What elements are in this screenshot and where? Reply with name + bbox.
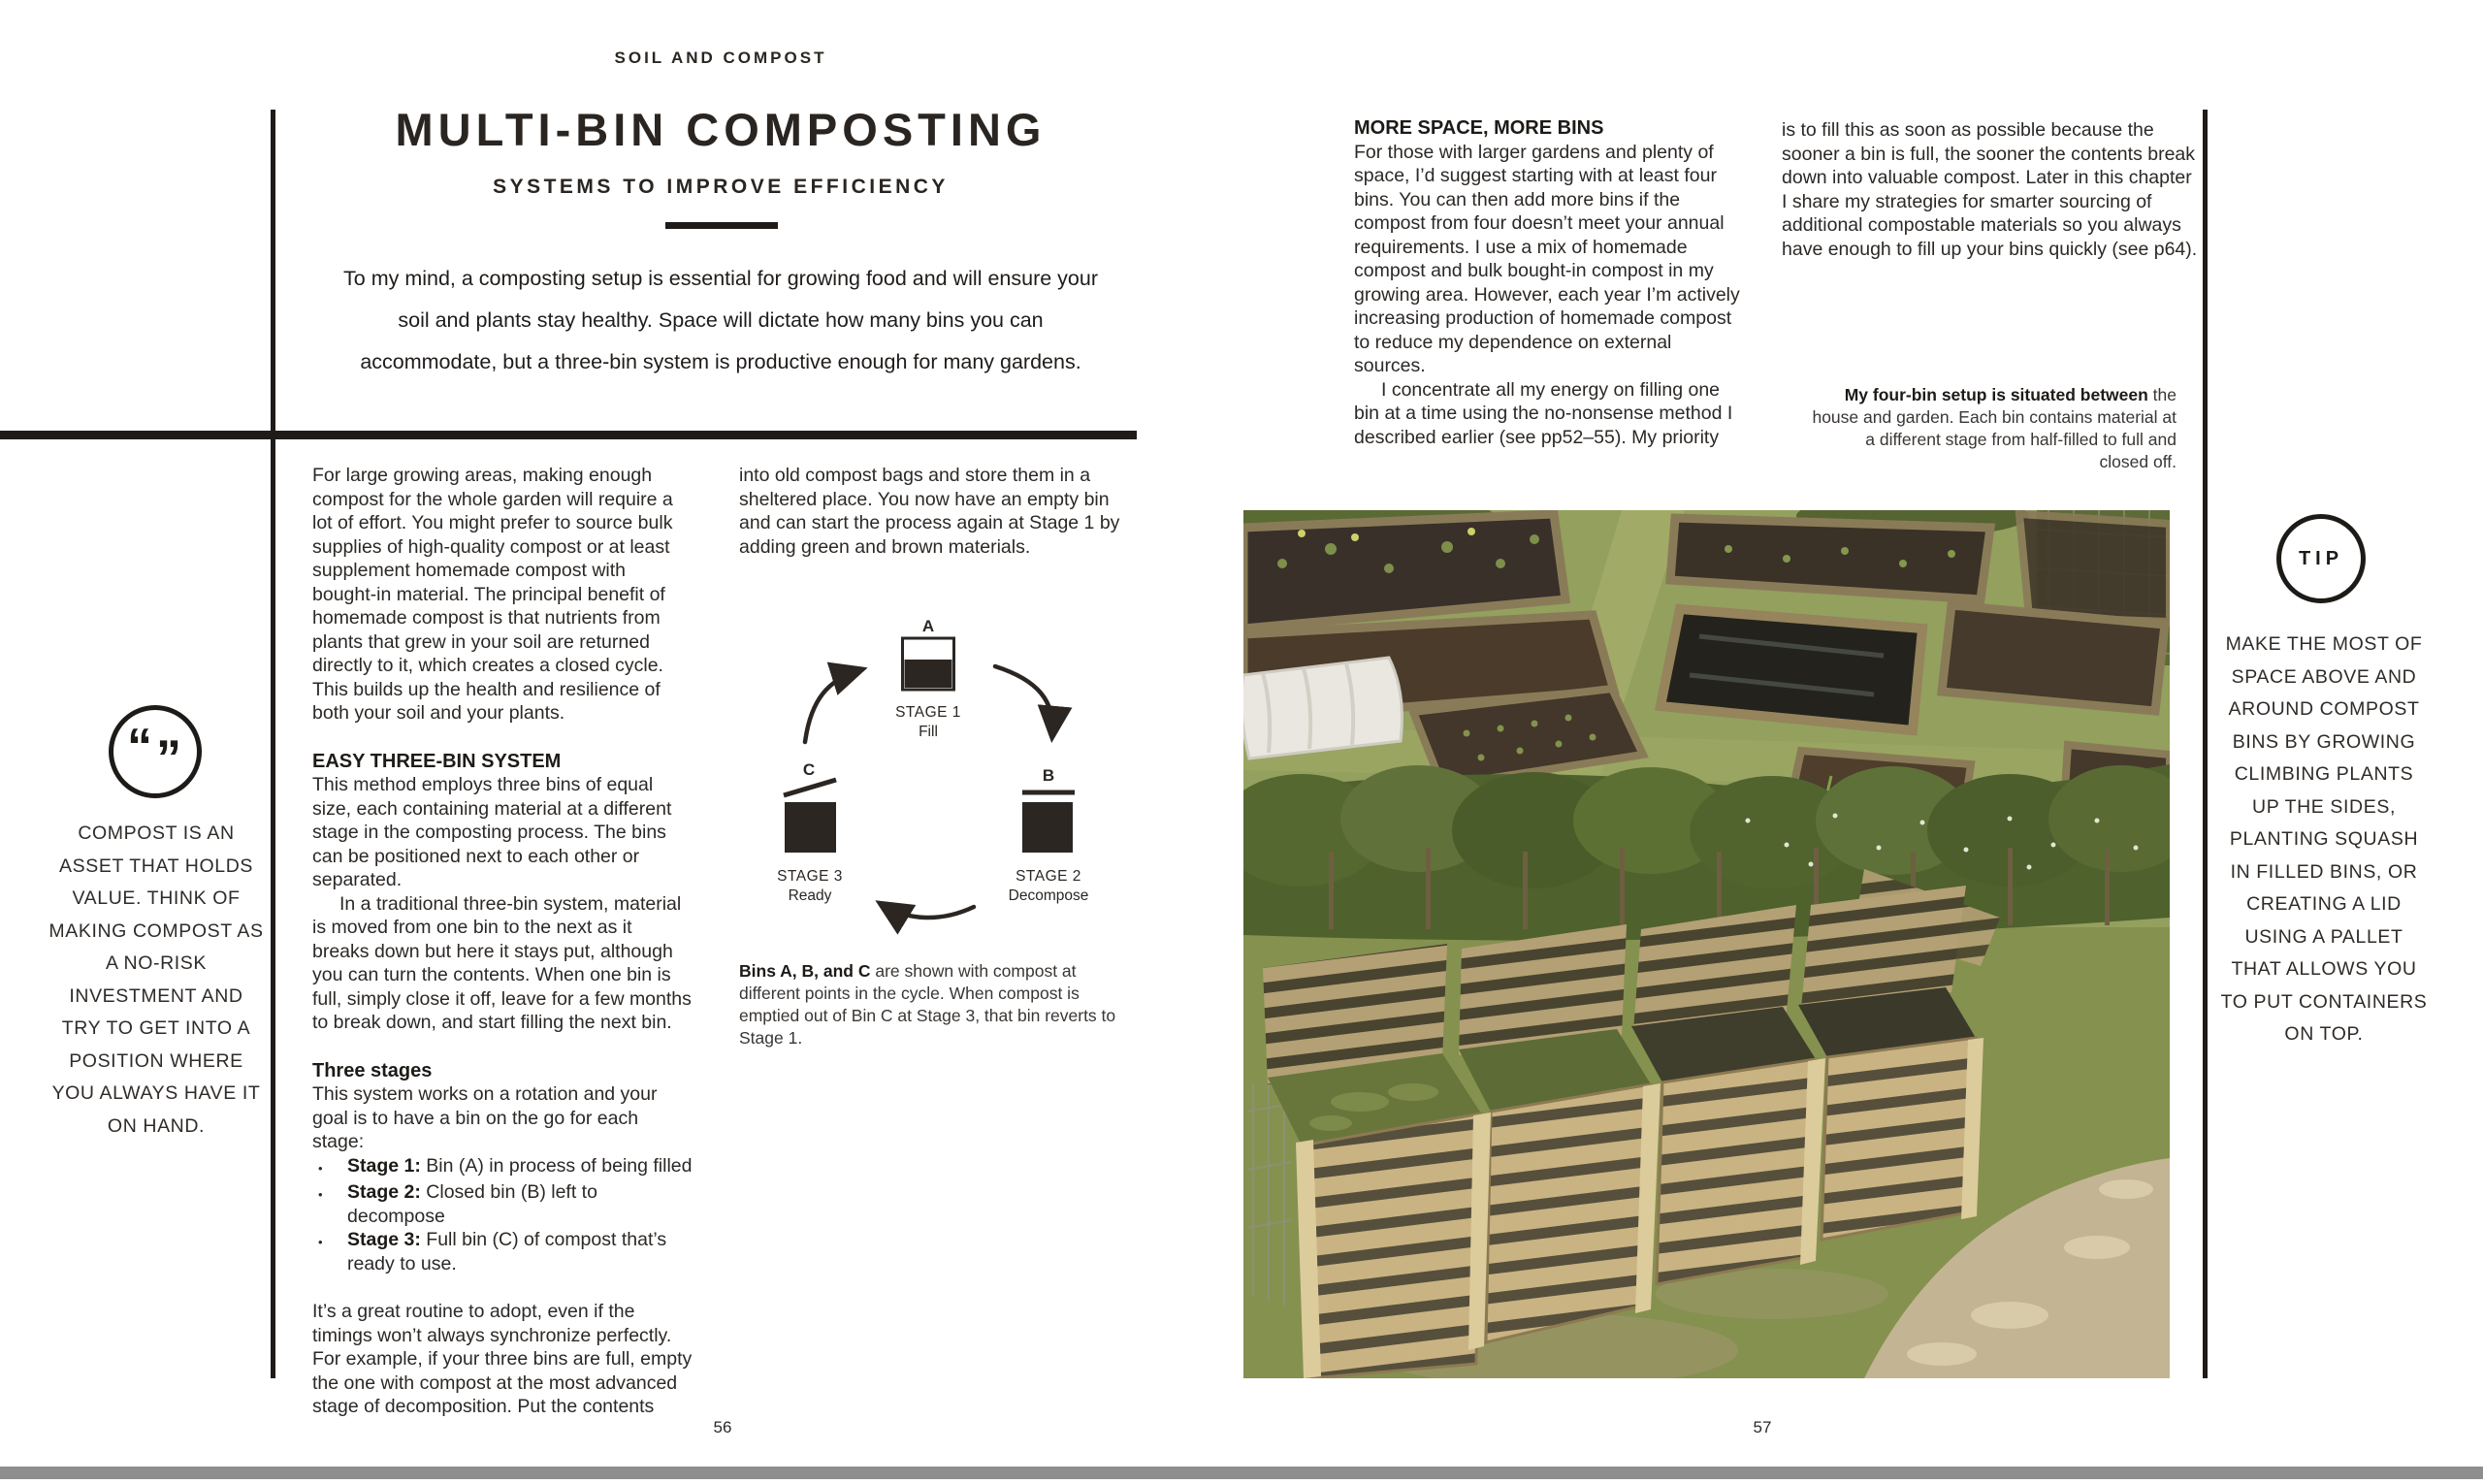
- paragraph: In a traditional three-bin system, mater…: [312, 892, 693, 1035]
- vertical-rule-left-page: [271, 110, 275, 1378]
- page-number-right: 57: [1733, 1418, 1791, 1437]
- diagram-stage3-action: Ready: [789, 887, 832, 904]
- arrow-a-to-b: [995, 666, 1052, 734]
- diagram-bin-c-letter: C: [803, 760, 815, 779]
- title-rule: [665, 222, 778, 229]
- paragraph: into old compost bags and store them in …: [739, 464, 1127, 559]
- paragraph: This system works on a rotation and your…: [312, 1082, 693, 1154]
- left-page-column-1: For large growing areas, making enough c…: [312, 464, 693, 1419]
- diagram-bin-c-lid: [784, 780, 836, 795]
- pull-quote-text: COMPOST IS AN ASSET THAT HOLDS VALUE. TH…: [48, 818, 265, 1143]
- paragraph: is to fill this as soon as possible beca…: [1782, 118, 2201, 261]
- tip-text: MAKE THE MOST OF SPACE ABOVE AND AROUND …: [2219, 629, 2429, 1051]
- bullet-item-stage-1: • Stage 1: Bin (A) in process of being f…: [312, 1154, 693, 1181]
- bullet-icon: •: [312, 1154, 347, 1181]
- diagram-bin-a-letter: A: [922, 617, 934, 635]
- arrow-b-to-c: [883, 905, 974, 918]
- diagram-bin-c-box: [785, 802, 836, 853]
- stage-bullet-list: • Stage 1: Bin (A) in process of being f…: [312, 1154, 693, 1276]
- diagram-stage1-label: STAGE 1: [895, 704, 961, 721]
- chapter-kicker: SOIL AND COMPOST: [333, 48, 1109, 68]
- open-quote-icon: “: [127, 722, 152, 772]
- diagram-stage1-action: Fill: [919, 724, 938, 740]
- bullet-icon: •: [312, 1228, 347, 1275]
- section-heading-easy-three-bin: EASY THREE-BIN SYSTEM: [312, 750, 693, 774]
- tip-label: TIP: [2281, 519, 2361, 598]
- pull-quote-circle: “ ”: [109, 705, 202, 798]
- diagram-bin-b-letter: B: [1043, 766, 1054, 785]
- section-heading-three-stages: Three stages: [312, 1059, 693, 1083]
- diagram-bin-b-box: [1022, 802, 1073, 853]
- diagram-caption: Bins A, B, and C are shown with compost …: [739, 960, 1125, 1049]
- close-quote-icon: ”: [156, 733, 181, 784]
- bullet-icon: •: [312, 1180, 347, 1228]
- intro-paragraph: To my mind, a composting setup is essent…: [333, 258, 1109, 383]
- left-page-column-2: into old compost bags and store them in …: [739, 464, 1127, 559]
- diagram-stage2-label: STAGE 2: [1016, 868, 1081, 885]
- diagram-bin-a-fill: [905, 660, 952, 688]
- paragraph: For those with larger gardens and plenty…: [1354, 141, 1746, 378]
- page-number-left: 56: [693, 1418, 752, 1437]
- paragraph: This method employs three bins of equal …: [312, 773, 693, 892]
- compost-bins-photo: [1243, 510, 2170, 1378]
- photo-caption: My four-bin setup is situated between th…: [1812, 384, 2177, 473]
- page-title: MULTI-BIN COMPOSTING: [333, 103, 1109, 156]
- diagram-stage2-action: Decompose: [1009, 887, 1089, 904]
- bottom-edge-bar: [0, 1467, 2483, 1479]
- three-bin-cycle-diagram: A STAGE 1 Fill B STAGE 2 Decompose C STA…: [747, 597, 1145, 953]
- bullet-item-stage-3: • Stage 3: Full bin (C) of compost that’…: [312, 1228, 693, 1275]
- paragraph: For large growing areas, making enough c…: [312, 464, 693, 726]
- diagram-stage3-label: STAGE 3: [777, 868, 843, 885]
- page-subtitle: SYSTEMS TO IMPROVE EFFICIENCY: [333, 176, 1109, 199]
- tip-circle: TIP: [2276, 514, 2366, 603]
- paragraph: I concentrate all my energy on filling o…: [1354, 378, 1746, 450]
- book-spread: { "colors": { "ink": "#231f20", "paper":…: [0, 0, 2483, 1484]
- bullet-item-stage-2: • Stage 2: Closed bin (B) left to decomp…: [312, 1180, 693, 1228]
- vertical-rule-right-page: [2203, 110, 2208, 1378]
- paragraph: It’s a great routine to adopt, even if t…: [312, 1300, 693, 1419]
- horizontal-rule-left-page: [0, 431, 1137, 439]
- section-heading-more-space: MORE SPACE, MORE BINS: [1354, 116, 1746, 141]
- right-page-column-2: is to fill this as soon as possible beca…: [1782, 118, 2201, 261]
- right-page-column-1: MORE SPACE, MORE BINS For those with lar…: [1354, 116, 1746, 449]
- arrow-c-to-a: [805, 670, 859, 742]
